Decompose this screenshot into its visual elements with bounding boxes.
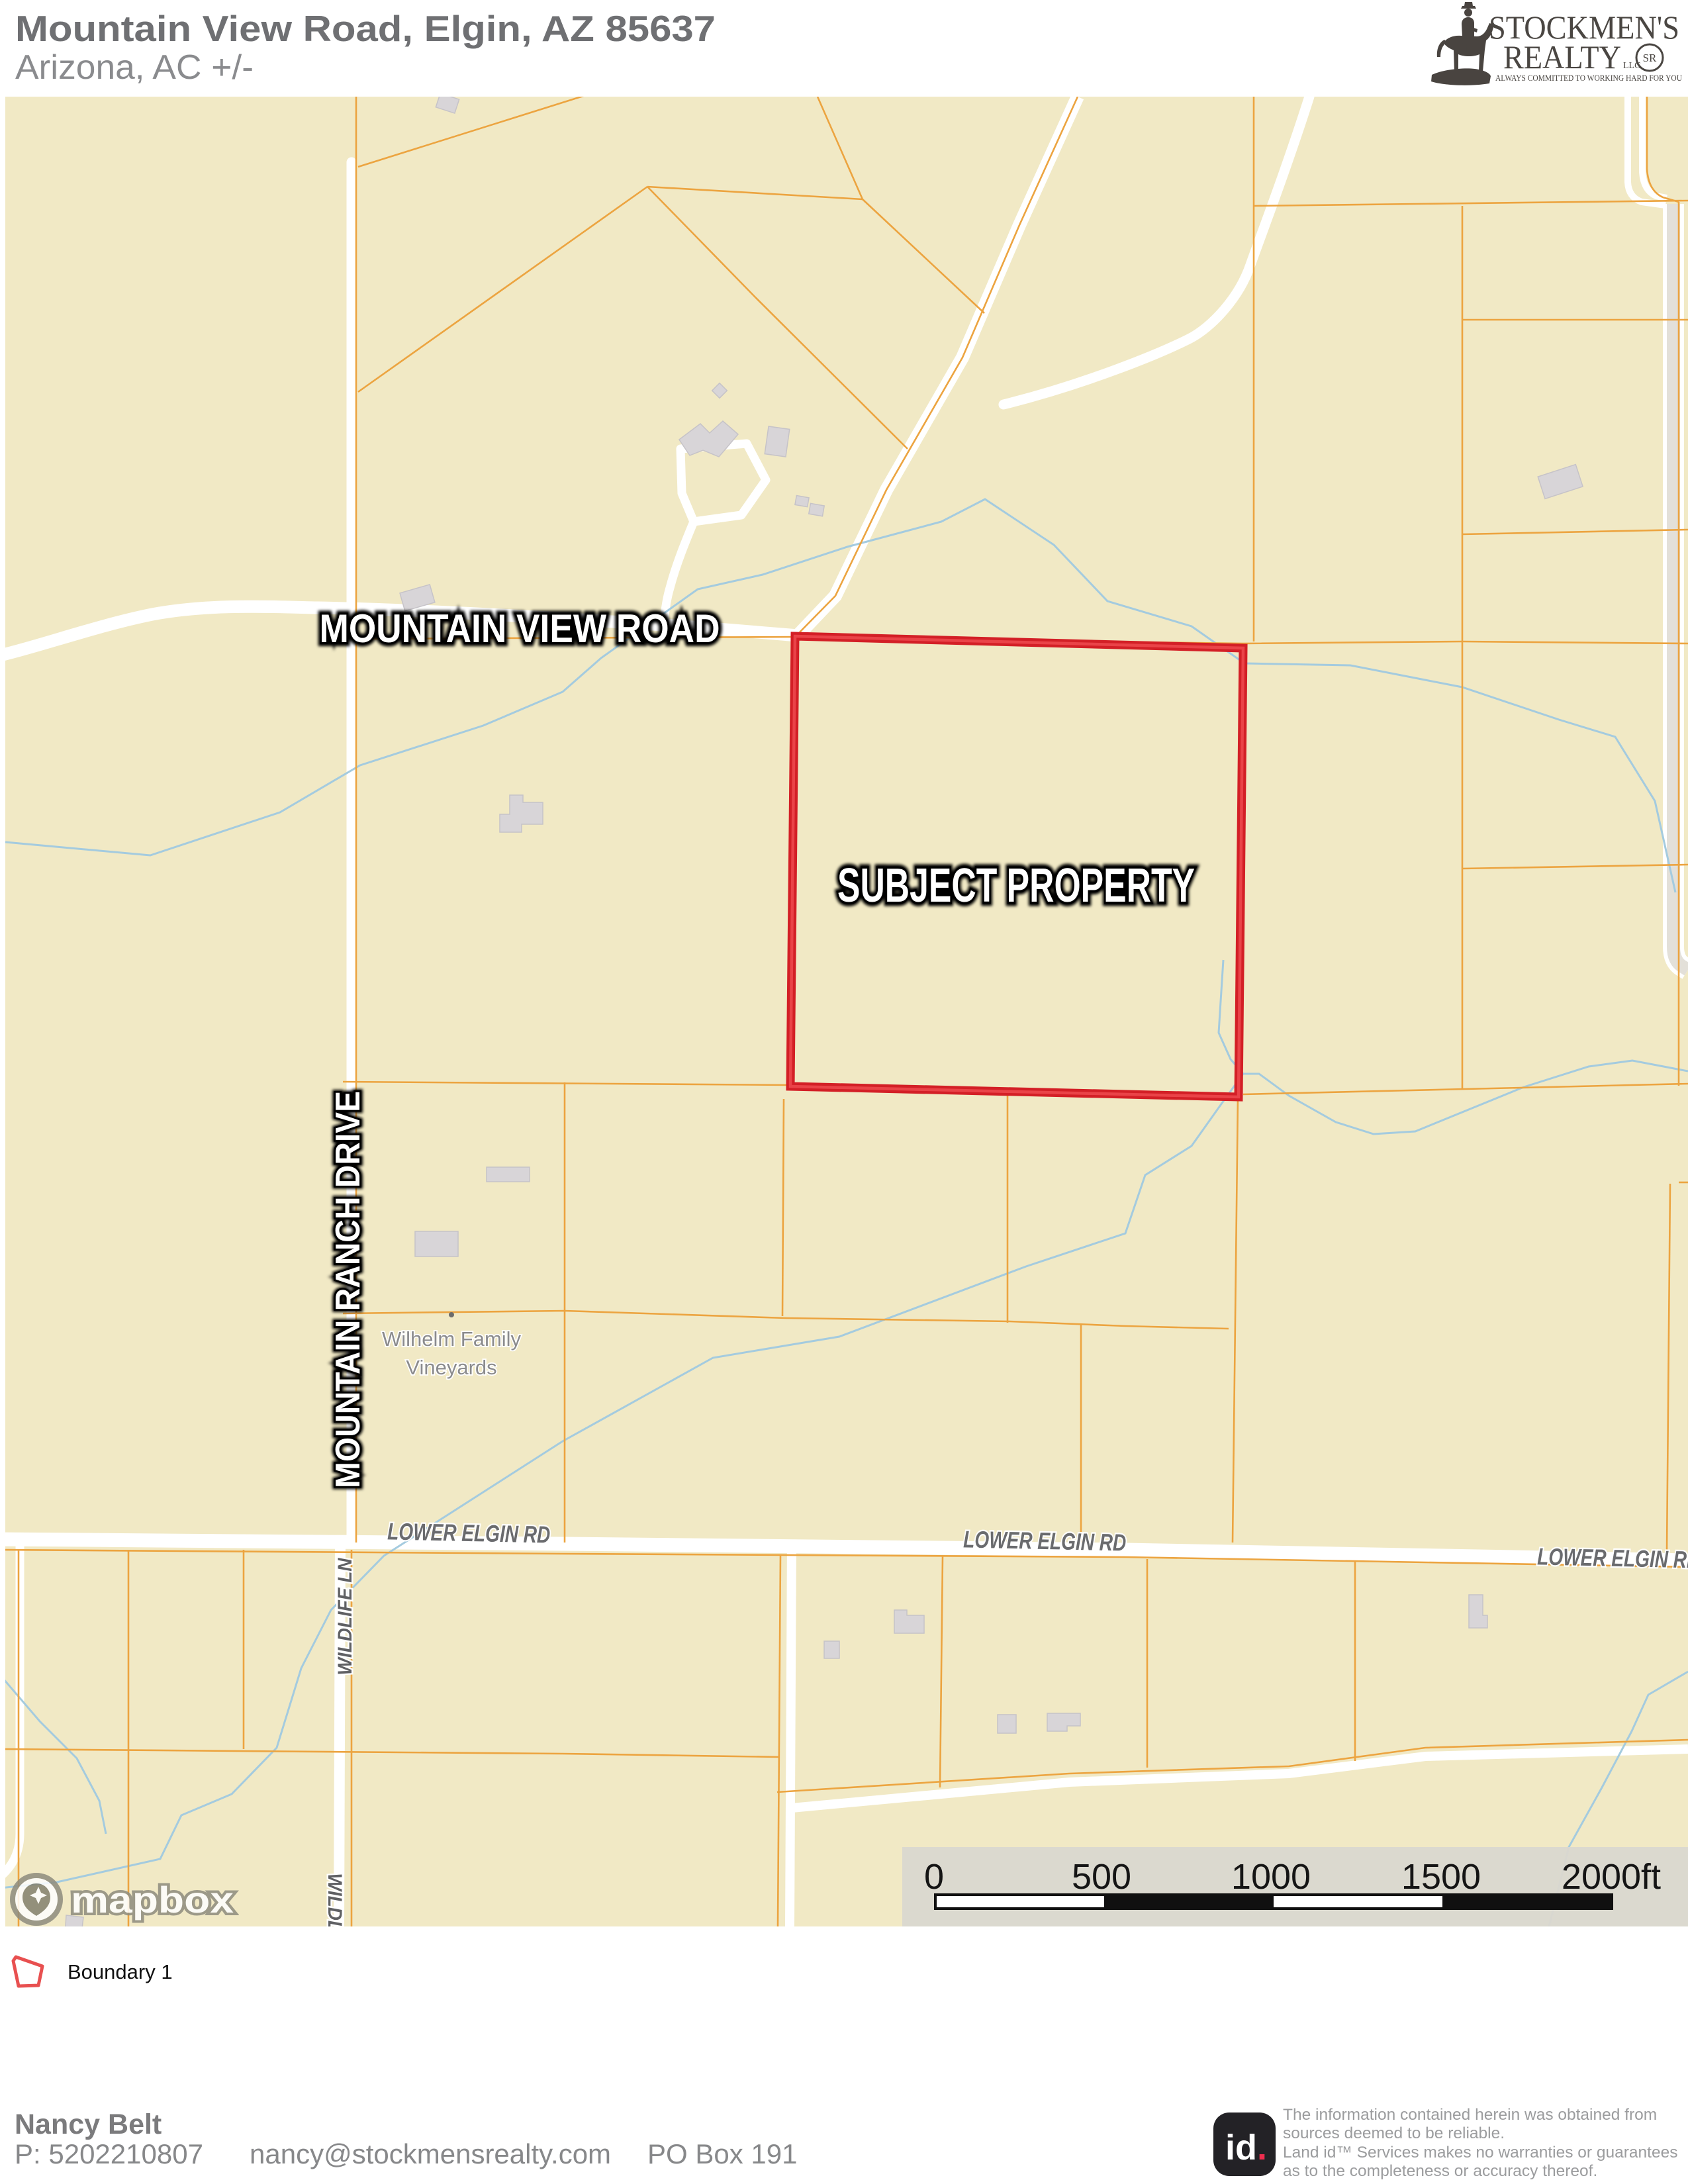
svg-text:Wilhelm Family: Wilhelm Family bbox=[382, 1327, 522, 1351]
svg-text:nancy@stockmensrealty.com: nancy@stockmensrealty.com bbox=[250, 2138, 611, 2169]
svg-text:Boundary 1: Boundary 1 bbox=[68, 1960, 173, 1983]
svg-text:P: 5202210807: P: 5202210807 bbox=[15, 2138, 203, 2169]
svg-text:WILDLIFE LN: WILDLIFE LN bbox=[324, 1874, 346, 1991]
svg-text:LOWER ELGIN RD: LOWER ELGIN RD bbox=[963, 1525, 1127, 1556]
svg-text:Vineyards: Vineyards bbox=[406, 1356, 496, 1379]
svg-text:id.: id. bbox=[1225, 2128, 1267, 2167]
svg-text:LOWER ELGIN RD: LOWER ELGIN RD bbox=[387, 1517, 551, 1548]
svg-text:WILDLIFE LN: WILDLIFE LN bbox=[334, 1557, 356, 1675]
svg-text:MOUNTAIN VIEW ROAD: MOUNTAIN VIEW ROAD bbox=[320, 606, 720, 651]
svg-text:0: 0 bbox=[924, 1857, 944, 1897]
svg-text:Arizona, AC +/-: Arizona, AC +/- bbox=[15, 48, 254, 87]
svg-text:LOWER ELGIN RD: LOWER ELGIN RD bbox=[1537, 1543, 1688, 1573]
svg-text:Nancy Belt: Nancy Belt bbox=[15, 2109, 162, 2140]
svg-text:sources deemed to be reliable.: sources deemed to be reliable. bbox=[1283, 2124, 1505, 2142]
svg-text:PO Box 191: PO Box 191 bbox=[647, 2138, 797, 2169]
svg-text:REALTY: REALTY bbox=[1503, 38, 1621, 75]
svg-text:ALWAYS COMMITTED TO WORKING HA: ALWAYS COMMITTED TO WORKING HARD FOR YOU bbox=[1495, 73, 1682, 83]
svg-text:as to the completeness or accu: as to the completeness or accuracy there… bbox=[1283, 2162, 1597, 2180]
svg-text:500: 500 bbox=[1072, 1857, 1131, 1897]
svg-text:MOUNTAIN RANCH DRIVE: MOUNTAIN RANCH DRIVE bbox=[329, 1091, 367, 1488]
svg-text:mapbox: mapbox bbox=[71, 1879, 234, 1921]
svg-text:1500: 1500 bbox=[1401, 1857, 1481, 1897]
svg-text:2000ft: 2000ft bbox=[1562, 1857, 1661, 1897]
svg-text:Mountain View Road, Elgin, AZ: Mountain View Road, Elgin, AZ 85637 bbox=[15, 8, 716, 49]
svg-text:SR: SR bbox=[1643, 52, 1657, 64]
svg-text:SUBJECT PROPERTY: SUBJECT PROPERTY bbox=[837, 859, 1195, 912]
svg-text:Land id™ Services makes no war: Land id™ Services makes no warranties or… bbox=[1283, 2144, 1677, 2161]
svg-text:1000: 1000 bbox=[1231, 1857, 1311, 1897]
svg-text:The information contained here: The information contained herein was obt… bbox=[1283, 2106, 1657, 2124]
